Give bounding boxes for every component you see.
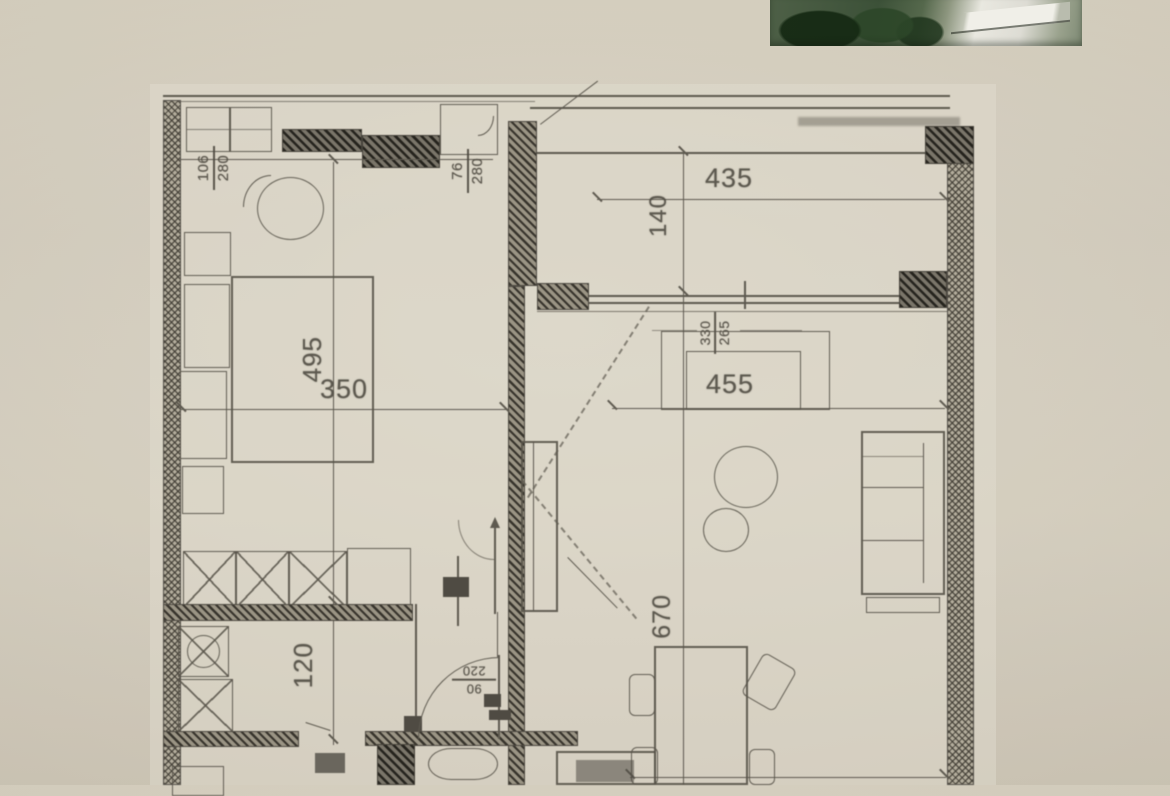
kitchen-niche-inner bbox=[686, 351, 801, 410]
plan-top-edge bbox=[163, 95, 950, 97]
dim-value: 76 bbox=[450, 162, 466, 180]
top-edge-inner-line bbox=[163, 101, 535, 102]
right-wall-corner-block bbox=[925, 126, 974, 164]
apartment-floor-plan: 435 140 455 670 495 350 120 106 280 76 2… bbox=[0, 0, 1170, 785]
central-wall-foot bbox=[537, 283, 589, 310]
bedroom-bath-wall bbox=[163, 604, 413, 621]
bath-cabinet bbox=[178, 679, 233, 732]
washing-machine-drum bbox=[187, 635, 220, 668]
sofa-back-line bbox=[923, 443, 924, 583]
door-symbol-blur bbox=[315, 753, 345, 773]
wardrobe-cell bbox=[183, 551, 236, 608]
nightstand bbox=[184, 232, 231, 276]
balcony-window-tick bbox=[744, 281, 746, 309]
living-top-inner-line bbox=[537, 311, 947, 312]
hall-door-arc bbox=[458, 520, 494, 560]
dim-balcony-depth: 140 bbox=[645, 194, 673, 237]
bed bbox=[231, 276, 374, 463]
tick bbox=[592, 192, 602, 202]
top-wall-segment-b bbox=[362, 135, 440, 168]
balcony-railing-line bbox=[533, 152, 947, 154]
dim-value: 280 bbox=[470, 158, 486, 185]
sofa-armrest-line bbox=[861, 456, 923, 457]
section-mark-flag bbox=[443, 577, 469, 597]
dining-chair bbox=[749, 749, 775, 785]
dim-balcony-width: 435 bbox=[705, 163, 753, 194]
balcony-diagonal-line bbox=[540, 81, 598, 125]
central-wall-upper bbox=[508, 121, 537, 286]
top-wall-segment-a bbox=[282, 129, 362, 152]
dining-chair bbox=[629, 674, 655, 716]
faded-annotation bbox=[798, 117, 960, 126]
bed-pillow bbox=[180, 371, 227, 459]
structural-column bbox=[377, 744, 415, 785]
right-exterior-wall bbox=[947, 126, 974, 785]
hall-cabinet-divider bbox=[533, 441, 534, 612]
bottom-wall-left bbox=[163, 731, 299, 747]
sofa-cushion-line bbox=[861, 540, 923, 541]
floor-plan-photo: { "photo_inset": { "alt": "greenery and … bbox=[0, 0, 1170, 785]
bath-door-frame bbox=[415, 604, 417, 734]
kitchen-appliance bbox=[576, 760, 634, 782]
door-hinge-block bbox=[489, 710, 511, 720]
entry-direction-arrow-shaft bbox=[494, 528, 496, 614]
circle-arrow-tail bbox=[243, 175, 271, 207]
bed-pillow bbox=[184, 284, 230, 368]
dim-hall-window: 76 280 bbox=[450, 149, 486, 193]
balcony-outer-line bbox=[530, 107, 950, 109]
dining-table bbox=[654, 646, 748, 785]
dim-hall-width: 120 bbox=[288, 642, 319, 688]
wardrobe-cell bbox=[289, 551, 347, 608]
sideboard bbox=[866, 597, 940, 613]
wardrobe-cell bbox=[236, 551, 289, 608]
dim-value: 280 bbox=[216, 155, 232, 182]
coffee-table-small bbox=[703, 508, 749, 552]
door-hinge-block bbox=[484, 694, 501, 707]
bedroom-window-sill-line bbox=[186, 129, 272, 130]
coffee-table-round bbox=[714, 446, 778, 508]
stool bbox=[428, 748, 498, 780]
balcony-wall-right-block bbox=[899, 271, 947, 308]
hall-tall-cabinet bbox=[521, 441, 558, 612]
dim-living-length: 670 bbox=[648, 594, 677, 639]
nightstand bbox=[182, 466, 224, 514]
wardrobe-end-cabinet bbox=[347, 548, 411, 608]
entry-wall-edge bbox=[497, 612, 498, 657]
dim-value: 106 bbox=[196, 155, 212, 182]
door-tick bbox=[305, 722, 330, 731]
dining-chair bbox=[741, 652, 798, 713]
ceiling-dashed-line bbox=[527, 306, 650, 498]
dim-bedroom-window: 106 280 bbox=[196, 146, 232, 190]
bottom-fixture bbox=[172, 766, 224, 796]
sofa-cushion-line bbox=[861, 487, 923, 488]
